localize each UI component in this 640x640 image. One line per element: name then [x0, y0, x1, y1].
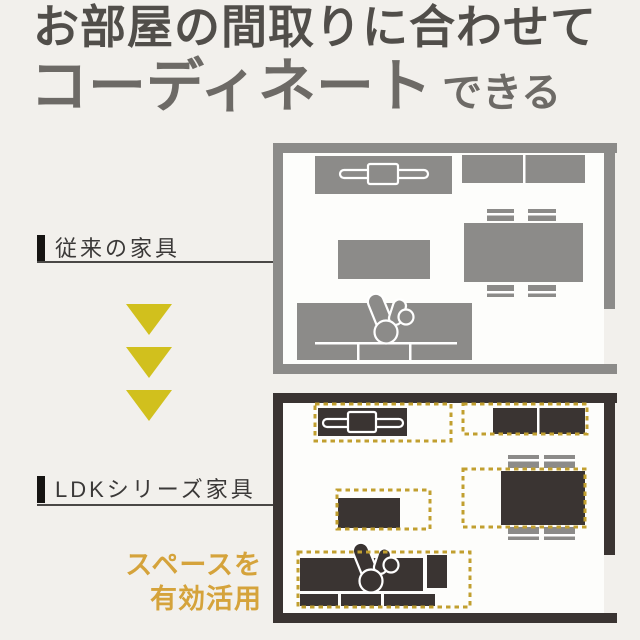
label-bar-icon: [37, 235, 45, 262]
heading-dekiru-text: できる: [442, 71, 561, 115]
dining-table: [464, 223, 583, 282]
wall-right: [604, 143, 615, 309]
space-caption-line2: 有効活用: [125, 583, 262, 617]
after-label: LDKシリーズ家具: [37, 476, 256, 503]
floorplan-after: [273, 393, 617, 623]
arrow-down-icon: [126, 304, 172, 335]
before-label: 従来の家具: [37, 235, 180, 262]
before-label-text: 従来の家具: [55, 238, 180, 260]
before-label-underline: [37, 261, 273, 263]
cabinet-divider: [523, 155, 526, 183]
heading-line2: コーディネートできる: [30, 58, 561, 116]
after-label-text: LDKシリーズ家具: [55, 479, 256, 501]
arrow-down-icon: [126, 347, 172, 378]
dining-table: [501, 471, 585, 525]
coffee-table: [338, 240, 430, 279]
heading-line1: お部屋の間取りに合わせて: [33, 4, 597, 50]
dining-chair: [544, 527, 575, 540]
floorplan-before: [273, 143, 617, 374]
wall-bottom: [273, 613, 617, 623]
dining-chair: [508, 527, 539, 540]
wall-bottom: [273, 364, 617, 374]
wall-top: [273, 393, 617, 403]
space-caption-line1: スペースを: [125, 549, 262, 583]
label-bar-icon: [37, 476, 45, 503]
wall-left: [273, 143, 283, 374]
wall-top: [273, 143, 617, 153]
coffee-table: [338, 498, 400, 528]
side-table: [427, 555, 447, 588]
cabinet-divider: [537, 408, 540, 434]
after-label-underline: [37, 504, 273, 506]
wall-right: [604, 393, 615, 555]
transition-arrows: [126, 304, 172, 433]
promo-image: お部屋の間取りに合わせて コーディネートできる 従来の家具 LDKシリーズ家具 …: [0, 0, 640, 640]
space-caption: スペースを 有効活用: [125, 549, 262, 617]
arrow-down-icon: [126, 390, 172, 421]
wall-left: [273, 393, 283, 623]
heading-coordinate-text: コーディネート: [30, 54, 432, 119]
